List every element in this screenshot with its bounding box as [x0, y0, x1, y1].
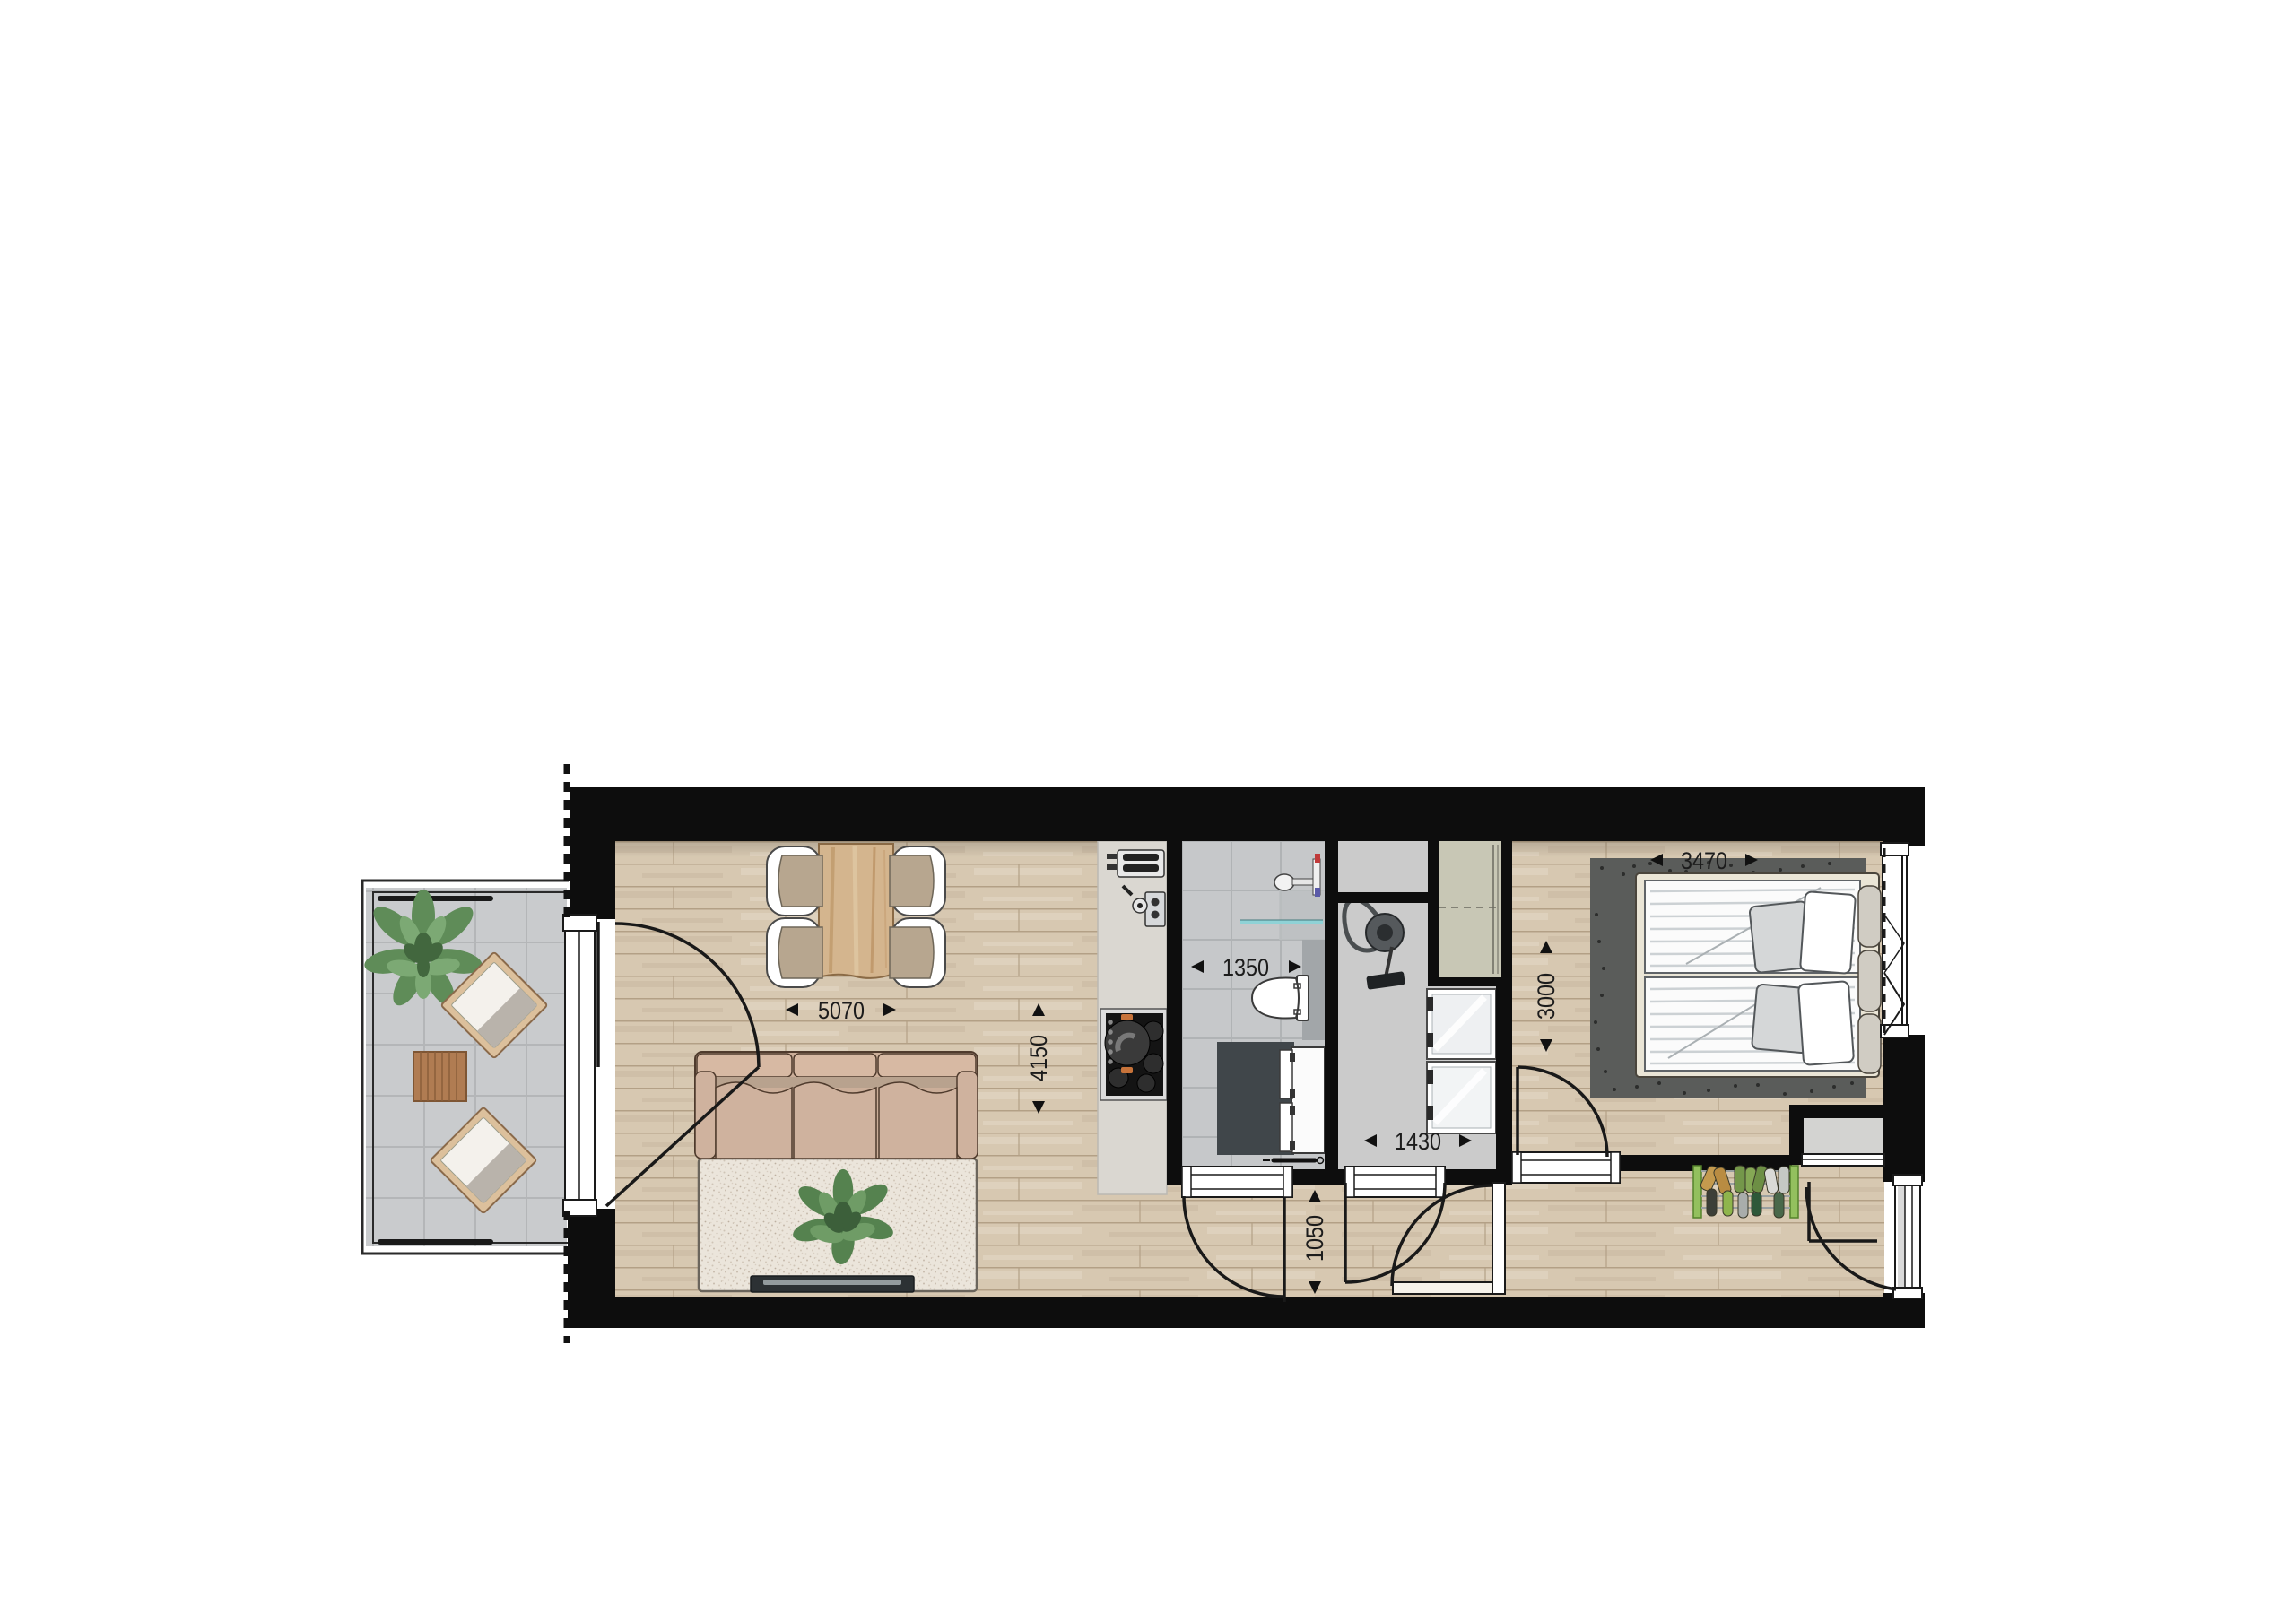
svg-text:1430: 1430 — [1395, 1128, 1441, 1155]
svg-text:4150: 4150 — [1025, 1035, 1052, 1081]
svg-text:5070: 5070 — [818, 997, 865, 1024]
svg-text:1350: 1350 — [1222, 954, 1269, 981]
svg-text:3470: 3470 — [1681, 847, 1727, 874]
svg-text:3000: 3000 — [1533, 973, 1560, 1020]
svg-text:1050: 1050 — [1301, 1215, 1328, 1262]
